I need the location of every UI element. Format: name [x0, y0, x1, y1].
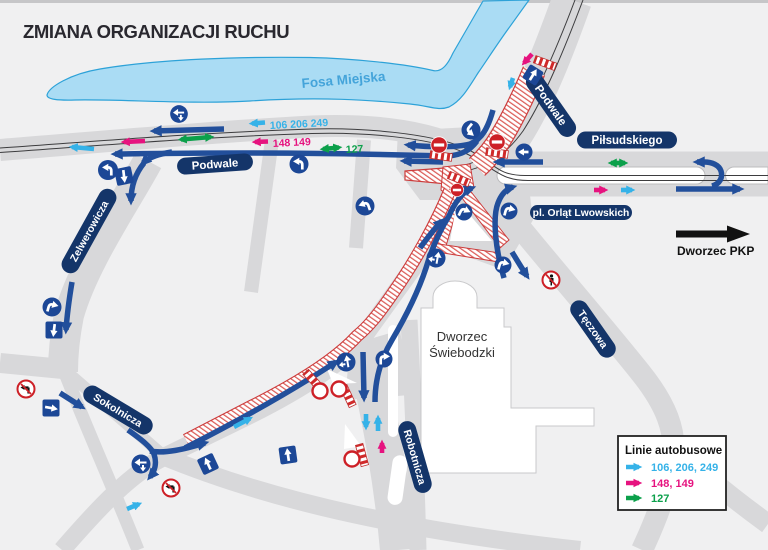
svg-text:Świebodzki: Świebodzki: [429, 345, 495, 360]
svg-text:127: 127: [651, 493, 669, 505]
svg-text:Linie autobusowe: Linie autobusowe: [625, 445, 722, 457]
svg-text:148, 149: 148, 149: [651, 478, 694, 490]
svg-text:Dworzec: Dworzec: [437, 329, 488, 344]
svg-text:148 149: 148 149: [273, 136, 312, 150]
svg-text:106, 206, 249: 106, 206, 249: [651, 462, 718, 474]
svg-text:Dworzec PKP: Dworzec PKP: [677, 244, 754, 258]
svg-text:127: 127: [346, 143, 364, 156]
svg-text:ZMIANA ORGANIZACJI RUCHU: ZMIANA ORGANIZACJI RUCHU: [23, 21, 289, 42]
svg-text:Piłsudskiego: Piłsudskiego: [592, 135, 663, 147]
svg-text:pl. Orląt Lwowskich: pl. Orląt Lwowskich: [533, 208, 630, 219]
